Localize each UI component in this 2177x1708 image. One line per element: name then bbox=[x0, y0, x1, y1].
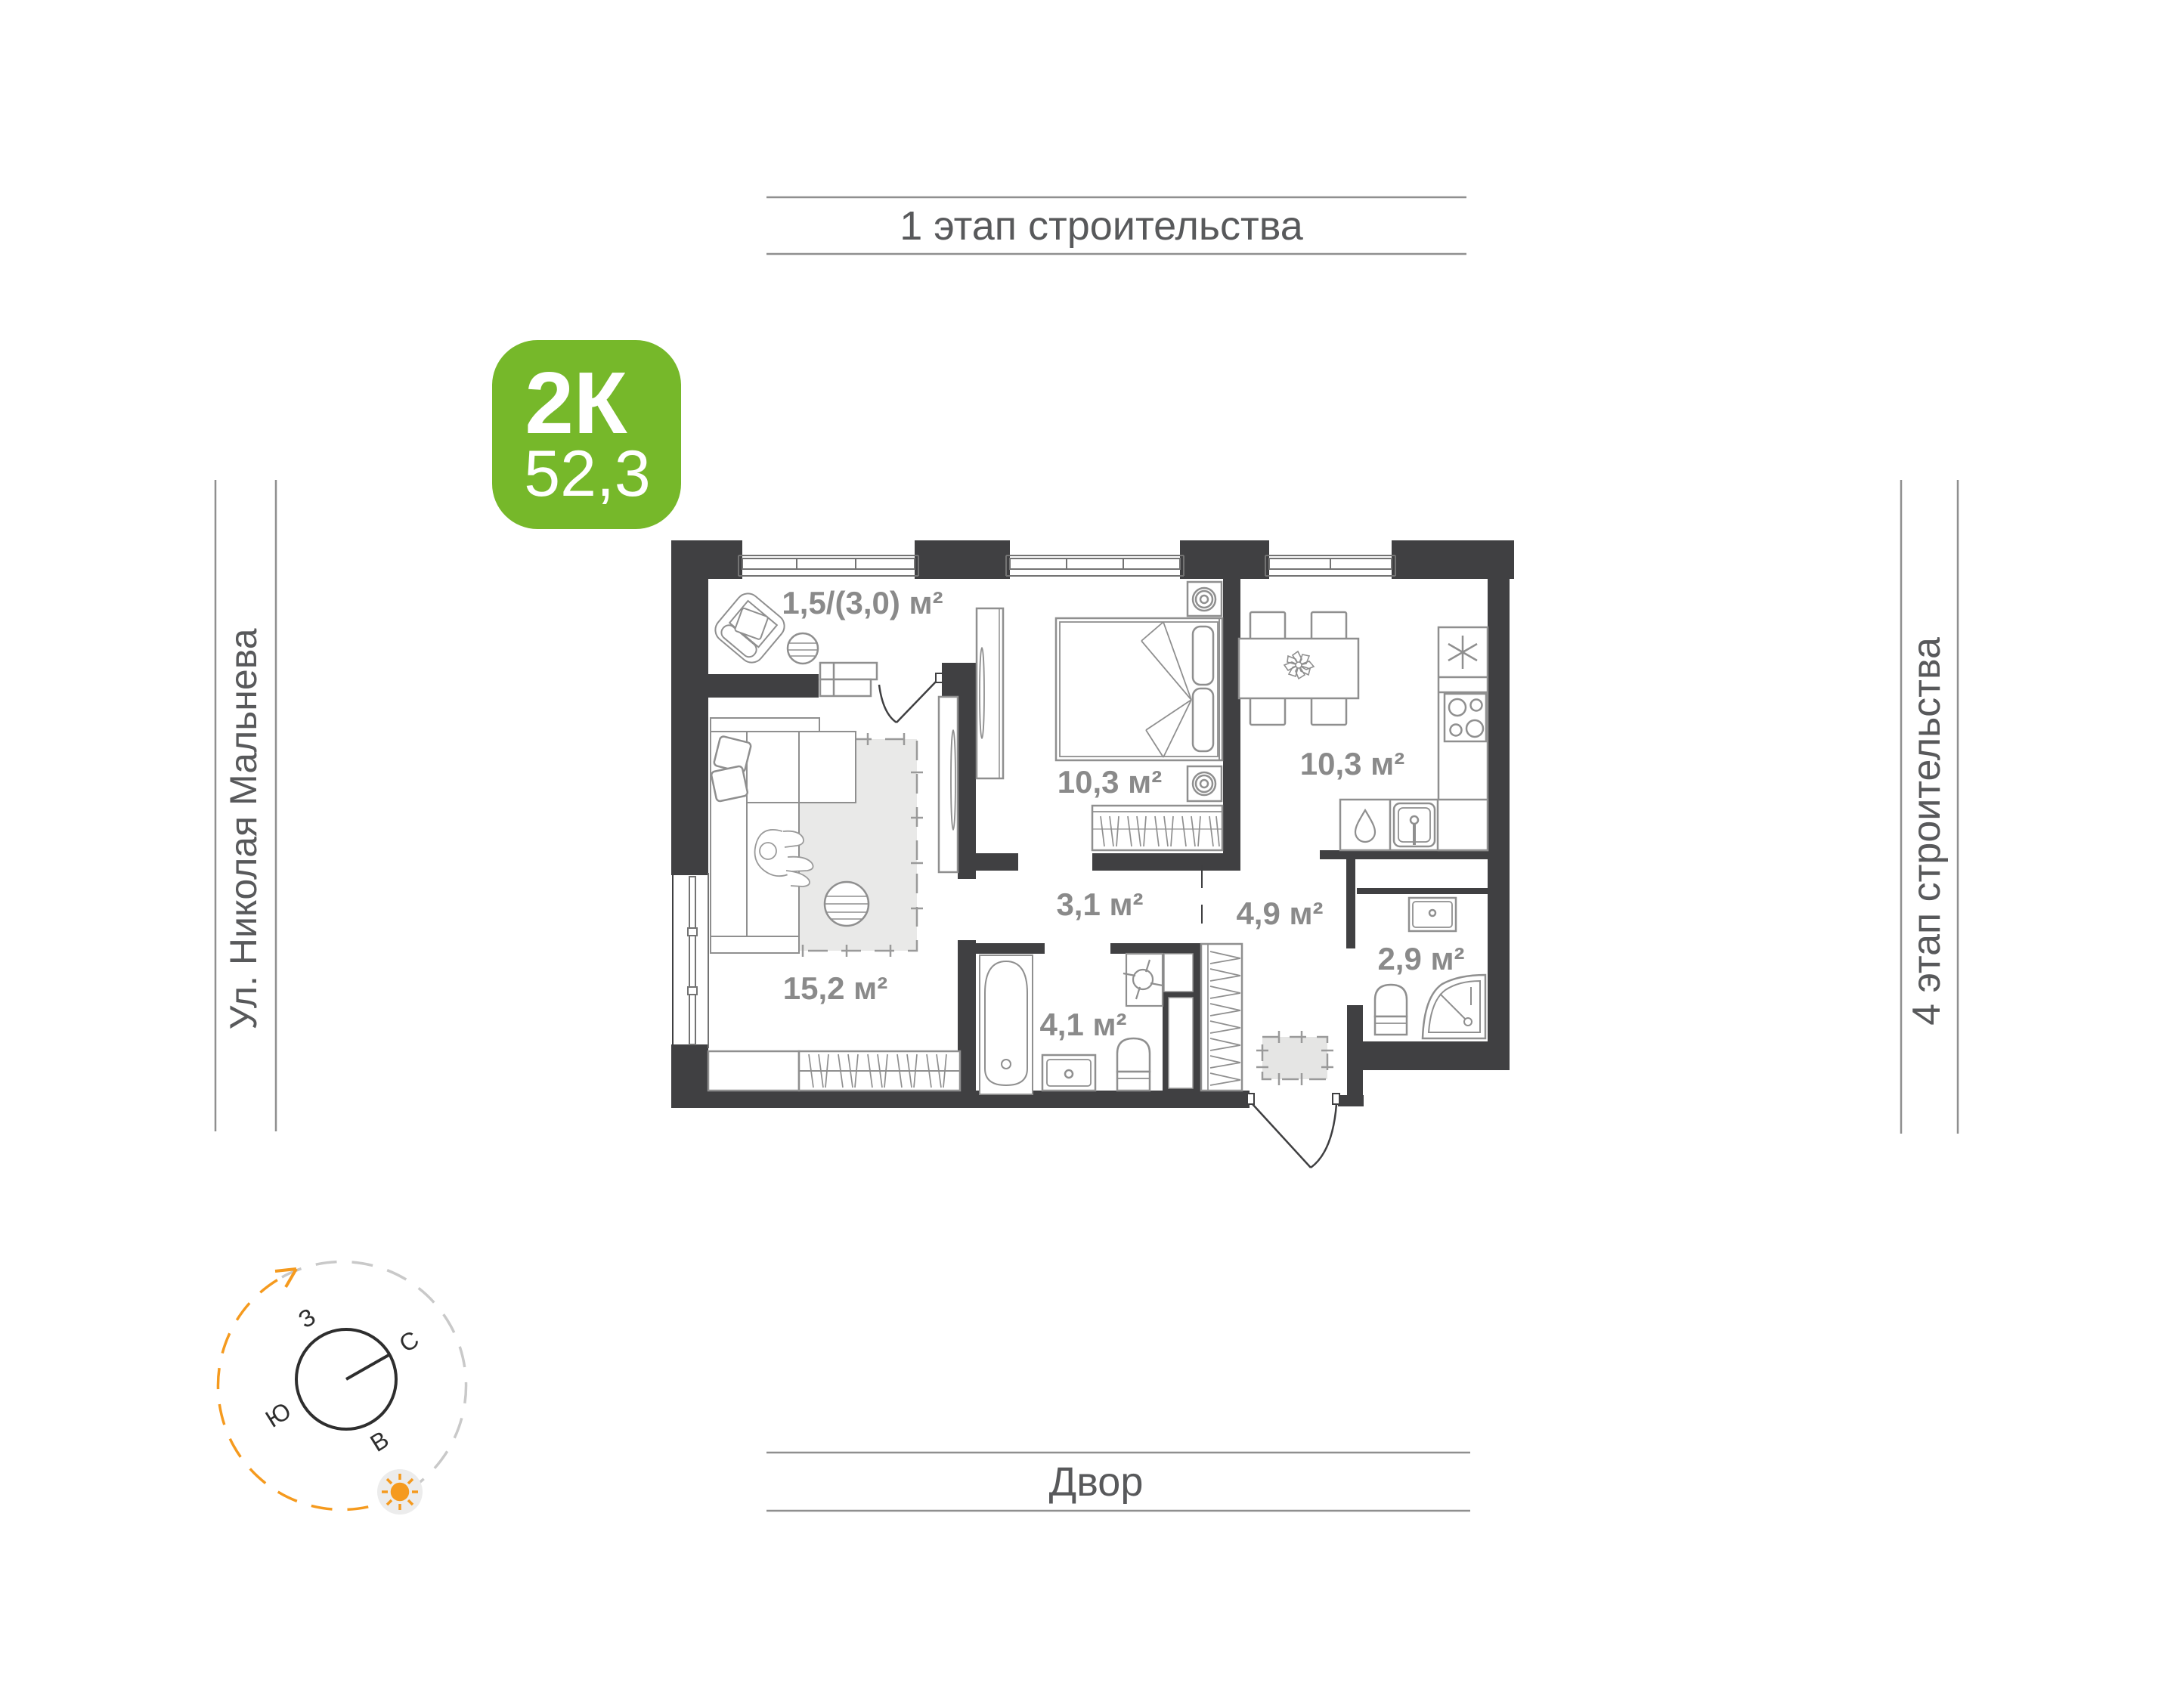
svg-text:1 этап строительства: 1 этап строительства bbox=[900, 203, 1304, 249]
svg-text:Ул. Николая Мальнева: Ул. Николая Мальнева bbox=[222, 628, 265, 1029]
svg-text:52,3: 52,3 bbox=[524, 438, 650, 510]
svg-text:3,1 м²: 3,1 м² bbox=[1056, 886, 1143, 922]
svg-text:1,5/(3,0) м²: 1,5/(3,0) м² bbox=[782, 585, 943, 620]
svg-text:4,1 м²: 4,1 м² bbox=[1039, 1007, 1126, 1042]
svg-text:15,2 м²: 15,2 м² bbox=[783, 970, 887, 1006]
svg-text:З: З bbox=[293, 1303, 320, 1334]
svg-text:4 этап строительства: 4 этап строительства bbox=[1905, 637, 1949, 1026]
svg-text:С: С bbox=[395, 1326, 424, 1358]
svg-text:Двор: Двор bbox=[1049, 1459, 1144, 1505]
svg-text:Ю: Ю bbox=[261, 1397, 296, 1433]
svg-text:10,3 м²: 10,3 м² bbox=[1058, 764, 1162, 800]
svg-text:10,3 м²: 10,3 м² bbox=[1300, 746, 1404, 781]
svg-text:2,9 м²: 2,9 м² bbox=[1377, 941, 1464, 976]
svg-text:4,9 м²: 4,9 м² bbox=[1236, 896, 1323, 931]
svg-text:В: В bbox=[365, 1425, 393, 1457]
